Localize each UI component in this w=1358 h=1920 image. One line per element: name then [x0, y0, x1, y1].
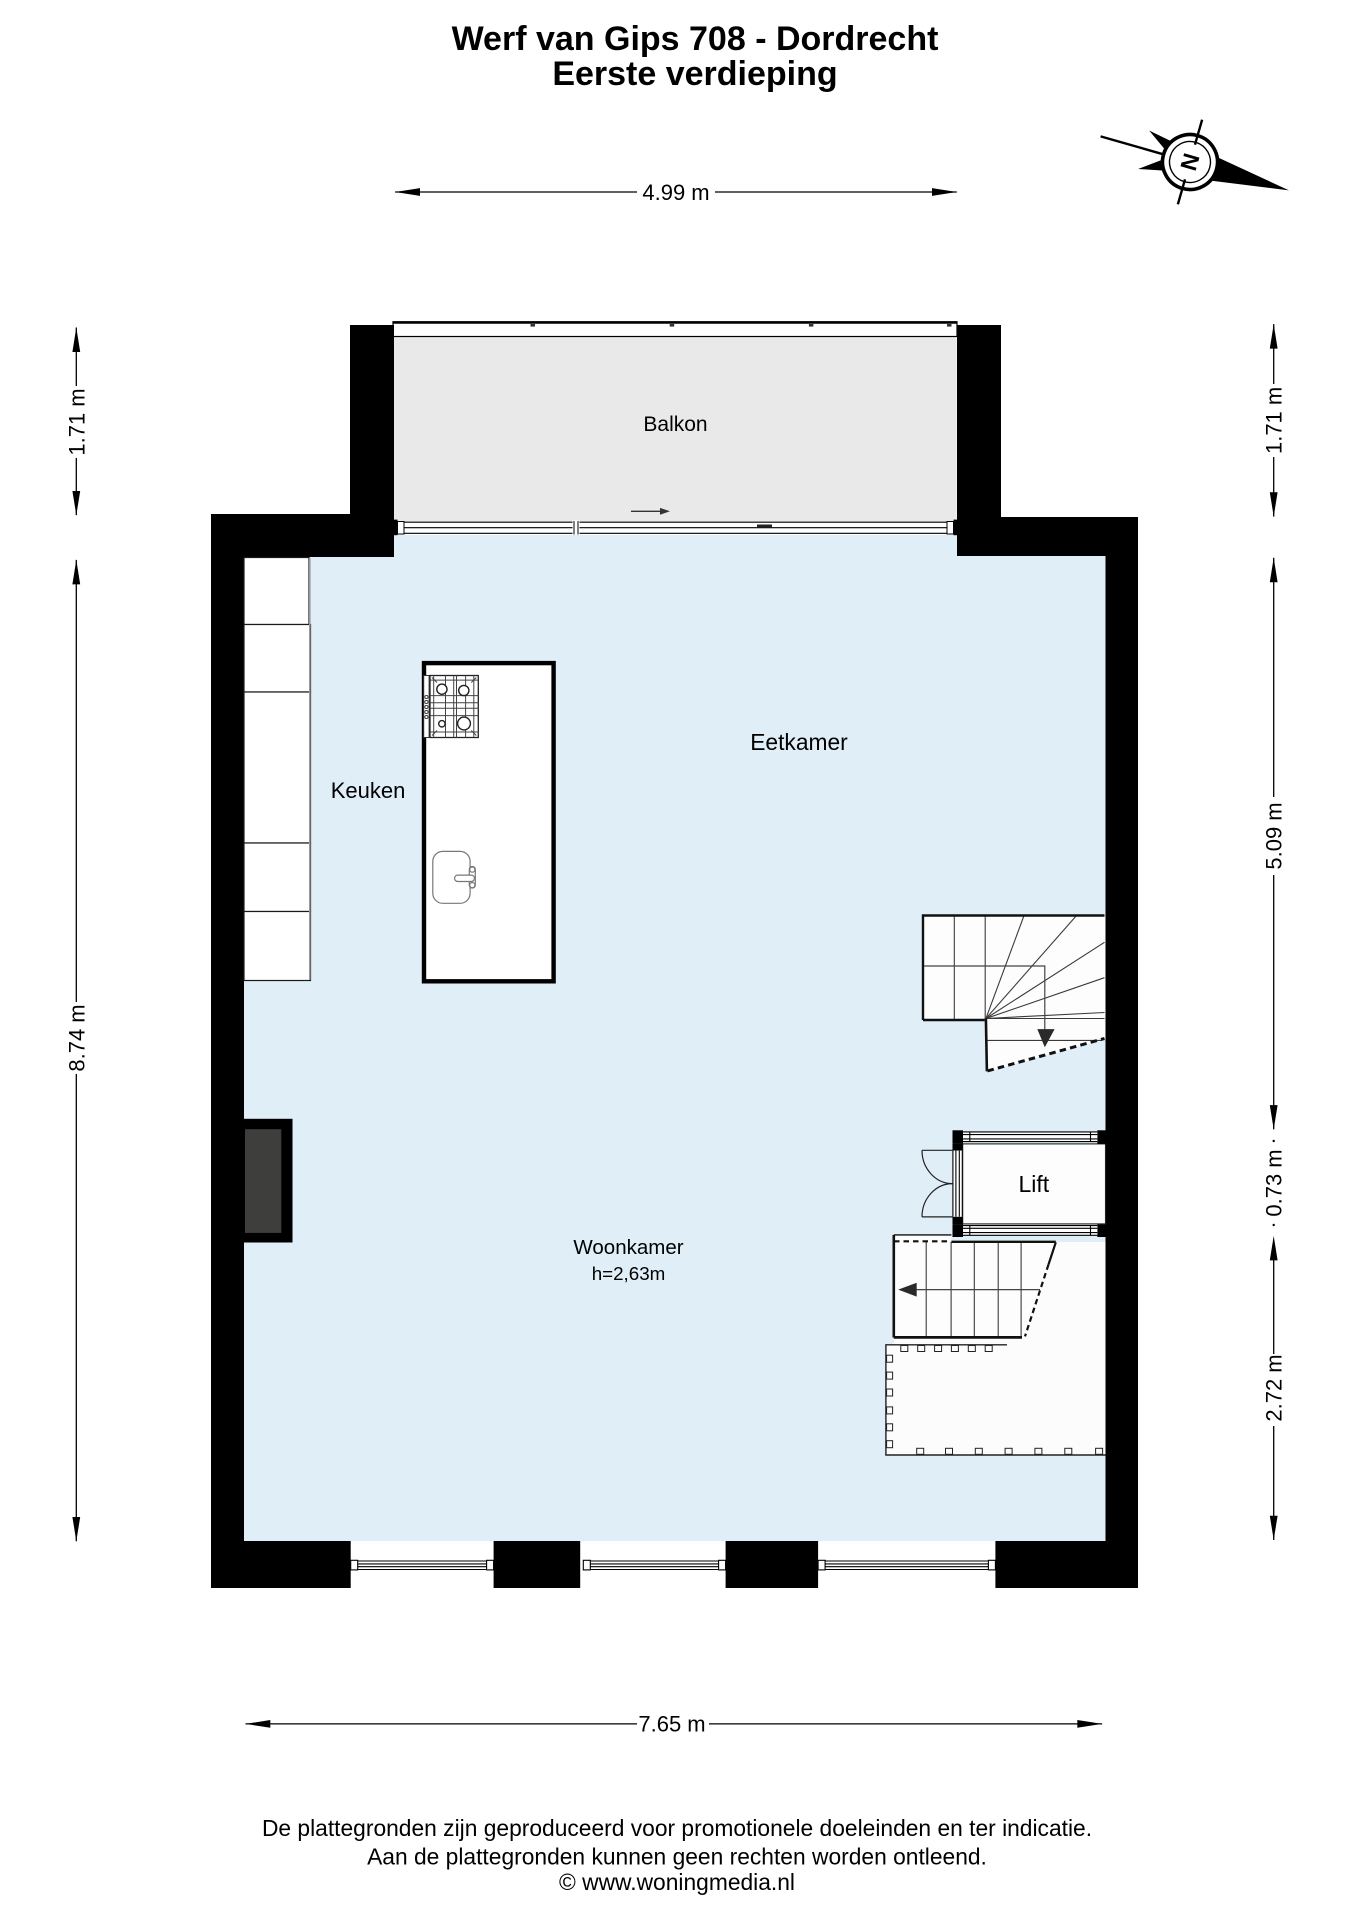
- svg-text:Werf van Gips 708 - Dordrecht: Werf van Gips 708 - Dordrecht: [452, 20, 939, 58]
- svg-text:1.71 m: 1.71 m: [64, 388, 89, 455]
- svg-text:Keuken: Keuken: [331, 778, 406, 803]
- svg-text:De plattegronden zijn geproduc: De plattegronden zijn geproduceerd voor …: [262, 1815, 1092, 1841]
- svg-text:Lift: Lift: [1018, 1171, 1049, 1197]
- svg-text:2.72 m: 2.72 m: [1262, 1354, 1287, 1421]
- svg-text:7.65 m: 7.65 m: [638, 1712, 705, 1737]
- svg-text:1.71 m: 1.71 m: [1262, 387, 1287, 454]
- svg-text:4.99 m: 4.99 m: [642, 180, 709, 205]
- svg-text:0.73 m: 0.73 m: [1262, 1149, 1287, 1216]
- svg-text:Woonkamer: Woonkamer: [573, 1236, 683, 1259]
- svg-text:Eetkamer: Eetkamer: [750, 729, 848, 755]
- svg-text:5.09 m: 5.09 m: [1262, 802, 1287, 869]
- svg-text:© www.woningmedia.nl: © www.woningmedia.nl: [559, 1869, 795, 1895]
- svg-text:h=2,63m: h=2,63m: [592, 1263, 666, 1284]
- svg-text:Aan de plattegronden kunnen ge: Aan de plattegronden kunnen geen rechten…: [367, 1844, 987, 1870]
- svg-text:Balkon: Balkon: [643, 413, 707, 436]
- svg-text:8.74 m: 8.74 m: [64, 1004, 89, 1071]
- svg-text:Eerste verdieping: Eerste verdieping: [552, 55, 837, 93]
